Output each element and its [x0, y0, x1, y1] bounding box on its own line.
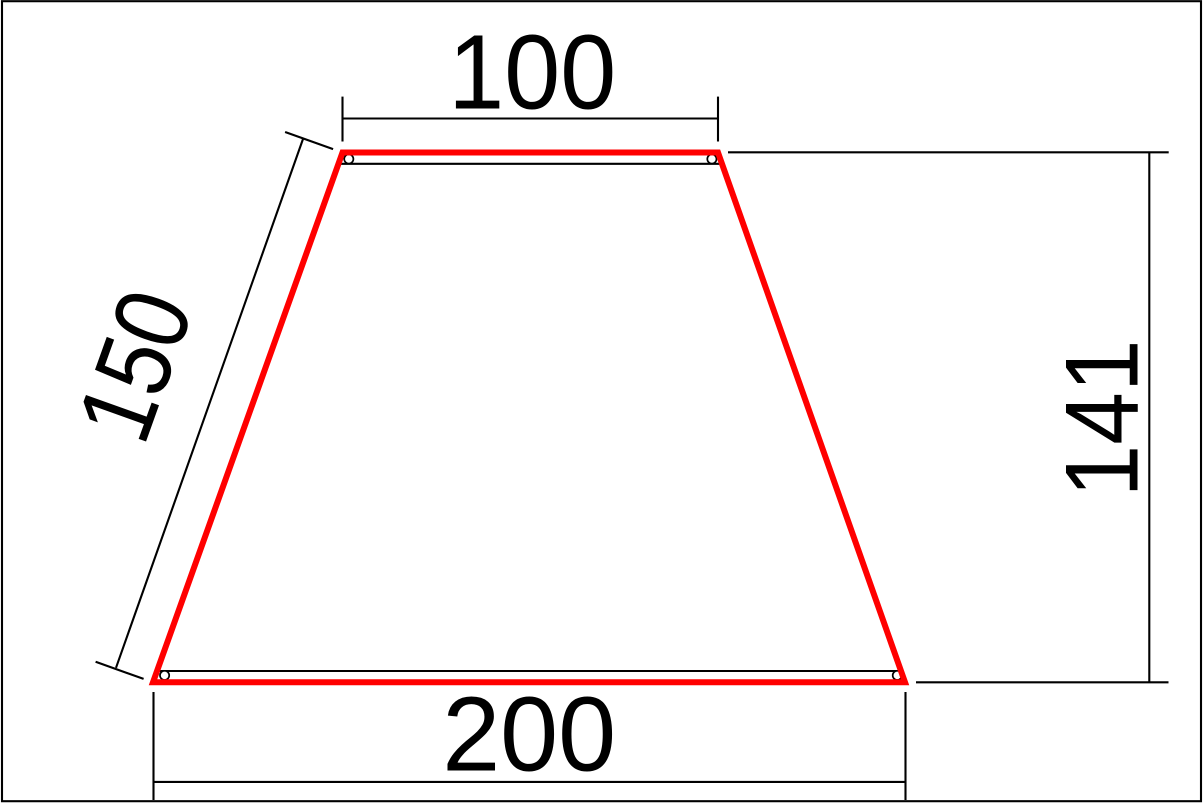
svg-text:100: 100: [448, 14, 616, 132]
svg-text:141: 141: [1045, 339, 1161, 497]
svg-text:200: 200: [442, 676, 616, 794]
